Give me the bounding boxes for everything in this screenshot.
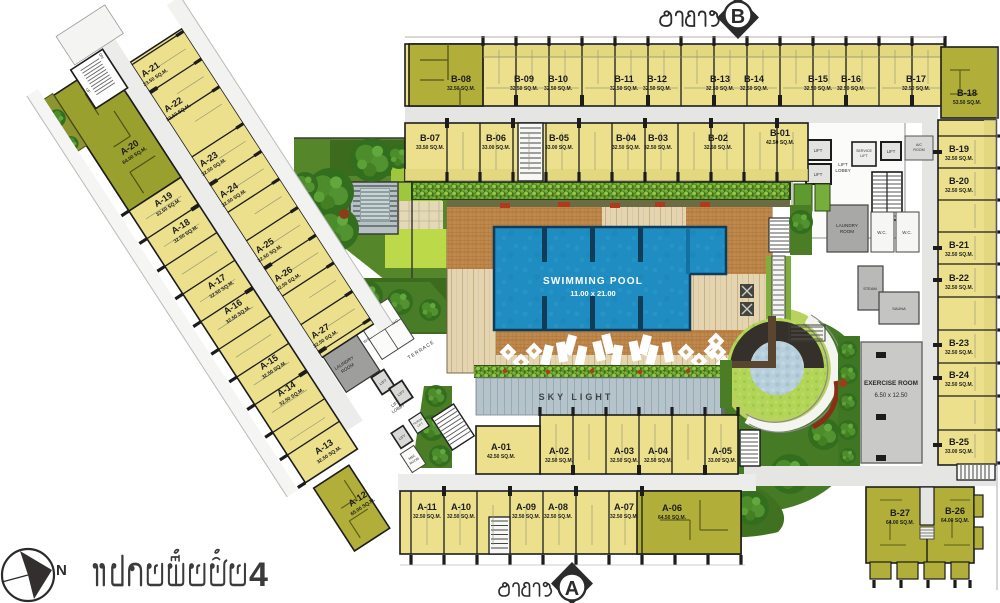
svg-text:32.50 SQ.M.: 32.50 SQ.M. <box>704 145 733 151</box>
svg-text:W.C.: W.C. <box>902 230 912 235</box>
svg-text:33.00 SQ.M.: 33.00 SQ.M. <box>945 449 974 455</box>
svg-text:B-09: B-09 <box>514 74 534 84</box>
svg-text:32.50 SQ.M.: 32.50 SQ.M. <box>740 86 769 92</box>
svg-text:32.50 SQ.M.: 32.50 SQ.M. <box>545 458 574 464</box>
svg-text:64.00 SQ.M.: 64.00 SQ.M. <box>941 518 970 524</box>
svg-text:B-02: B-02 <box>708 133 728 143</box>
svg-text:32.50 SQ.M.: 32.50 SQ.M. <box>447 86 476 92</box>
svg-text:STEAM: STEAM <box>863 286 876 291</box>
svg-text:32.50 SQ.M.: 32.50 SQ.M. <box>612 145 641 151</box>
svg-text:ROOM: ROOM <box>840 229 854 234</box>
svg-text:53.50 SQ.M.: 53.50 SQ.M. <box>953 100 982 106</box>
svg-text:B-27: B-27 <box>890 508 910 518</box>
svg-text:B-13: B-13 <box>710 74 730 84</box>
svg-text:B: B <box>731 6 745 28</box>
svg-text:32.50 SQ.M.: 32.50 SQ.M. <box>610 86 639 92</box>
svg-text:64.00 SQ.M.: 64.00 SQ.M. <box>886 520 915 526</box>
svg-text:B-24: B-24 <box>949 370 970 380</box>
svg-text:A-01: A-01 <box>491 442 511 452</box>
svg-text:B-25: B-25 <box>949 437 969 447</box>
svg-text:32.50 SQ.M.: 32.50 SQ.M. <box>644 145 673 151</box>
svg-text:B-06: B-06 <box>486 133 506 143</box>
svg-text:42.50 SQ.M.: 42.50 SQ.M. <box>487 454 516 460</box>
svg-text:B-05: B-05 <box>549 133 569 143</box>
svg-text:11.00 x 21.00: 11.00 x 21.00 <box>570 289 615 298</box>
svg-text:SWIMMING POOL: SWIMMING POOL <box>543 276 643 287</box>
svg-text:B-19: B-19 <box>949 144 969 154</box>
svg-text:4: 4 <box>249 556 268 594</box>
svg-text:32.50 SQ.M.: 32.50 SQ.M. <box>644 458 673 464</box>
svg-text:B-15: B-15 <box>808 74 828 84</box>
svg-text:B-12: B-12 <box>647 74 667 84</box>
svg-text:SKY LIGHT: SKY LIGHT <box>539 392 614 402</box>
svg-text:33.00 SQ.M.: 33.00 SQ.M. <box>545 145 574 151</box>
svg-text:32.50 SQ.M.: 32.50 SQ.M. <box>544 514 573 520</box>
svg-text:B-08: B-08 <box>451 74 471 84</box>
svg-text:LIFT: LIFT <box>814 172 823 177</box>
svg-text:B-04: B-04 <box>616 133 637 143</box>
svg-text:32.50 SQ.M.: 32.50 SQ.M. <box>610 458 639 464</box>
svg-text:LIFT: LIFT <box>860 154 868 158</box>
svg-text:32.50 SQ.M.: 32.50 SQ.M. <box>447 514 476 520</box>
svg-text:32.50 SQ.M.: 32.50 SQ.M. <box>643 86 672 92</box>
svg-text:32.50 SQ.M.: 32.50 SQ.M. <box>510 86 539 92</box>
svg-text:6.50 x 12.50: 6.50 x 12.50 <box>874 393 908 399</box>
svg-text:B-07: B-07 <box>420 133 440 143</box>
svg-text:SERVICE: SERVICE <box>856 149 872 153</box>
svg-text:32.50 SQ.M.: 32.50 SQ.M. <box>837 86 866 92</box>
svg-text:A-08: A-08 <box>548 502 568 512</box>
svg-text:A-06: A-06 <box>662 503 682 513</box>
svg-text:32.50 SQ.M.: 32.50 SQ.M. <box>945 188 974 194</box>
svg-text:A-02: A-02 <box>549 446 569 456</box>
svg-text:LAUNDRY: LAUNDRY <box>836 223 858 228</box>
svg-text:A-03: A-03 <box>614 446 634 456</box>
svg-text:N: N <box>56 562 67 579</box>
svg-text:B-18: B-18 <box>957 88 977 98</box>
svg-text:A-10: A-10 <box>451 502 471 512</box>
svg-text:A-07: A-07 <box>614 502 634 512</box>
svg-text:32.50 SQ.M.: 32.50 SQ.M. <box>945 156 974 162</box>
svg-text:32.50 SQ.M.: 32.50 SQ.M. <box>544 86 573 92</box>
svg-text:32.50 SQ.M.: 32.50 SQ.M. <box>706 86 735 92</box>
svg-text:B-20: B-20 <box>949 176 969 186</box>
svg-text:B-03: B-03 <box>648 133 668 143</box>
svg-text:64.50 SQ.M.: 64.50 SQ.M. <box>658 515 687 521</box>
svg-text:A: A <box>565 578 579 600</box>
svg-text:A/C: A/C <box>916 143 922 147</box>
svg-text:32.50 SQ.M.: 32.50 SQ.M. <box>413 514 442 520</box>
svg-text:33.50 SQ.M.: 33.50 SQ.M. <box>416 145 445 151</box>
svg-text:32.50 SQ.M.: 32.50 SQ.M. <box>512 514 541 520</box>
svg-text:32.50 SQ.M.: 32.50 SQ.M. <box>945 382 974 388</box>
svg-text:SAUNA: SAUNA <box>892 306 906 311</box>
svg-text:A-11: A-11 <box>417 502 436 512</box>
svg-text:B-16: B-16 <box>841 74 861 84</box>
svg-text:B-21: B-21 <box>949 240 969 250</box>
svg-text:32.50 SQ.M.: 32.50 SQ.M. <box>945 252 974 258</box>
svg-text:A-04: A-04 <box>648 446 669 456</box>
svg-text:B-22: B-22 <box>949 273 969 283</box>
svg-text:LIFT: LIFT <box>814 148 823 153</box>
svg-text:32.50 SQ.M.: 32.50 SQ.M. <box>945 350 974 356</box>
svg-text:33.00 SQ.M.: 33.00 SQ.M. <box>708 458 737 464</box>
svg-text:EXERCISE ROOM: EXERCISE ROOM <box>864 380 918 387</box>
svg-text:33.00 SQ.M.: 33.00 SQ.M. <box>482 145 511 151</box>
svg-text:42.50 SQ.M.: 42.50 SQ.M. <box>766 140 795 146</box>
svg-text:LIFT: LIFT <box>838 162 848 167</box>
svg-text:32.50 SQ.M.: 32.50 SQ.M. <box>610 514 639 520</box>
svg-text:B-01: B-01 <box>770 128 790 138</box>
svg-text:B-10: B-10 <box>548 74 568 84</box>
svg-text:ROOM: ROOM <box>913 148 924 152</box>
svg-text:A-09: A-09 <box>516 502 536 512</box>
svg-text:LIFT: LIFT <box>887 149 896 154</box>
svg-text:B-26: B-26 <box>945 506 965 516</box>
svg-text:32.50 SQ.M.: 32.50 SQ.M. <box>804 86 833 92</box>
svg-text:A-05: A-05 <box>712 446 732 456</box>
svg-text:32.50 SQ.M.: 32.50 SQ.M. <box>902 86 931 92</box>
svg-text:B-17: B-17 <box>906 74 926 84</box>
svg-text:B-14: B-14 <box>744 74 765 84</box>
svg-text:B-23: B-23 <box>949 338 969 348</box>
svg-text:W.C.: W.C. <box>877 230 887 235</box>
svg-text:B-11: B-11 <box>614 74 633 84</box>
svg-text:32.50 SQ.M.: 32.50 SQ.M. <box>945 285 974 291</box>
svg-text:LOBBY: LOBBY <box>835 168 850 173</box>
